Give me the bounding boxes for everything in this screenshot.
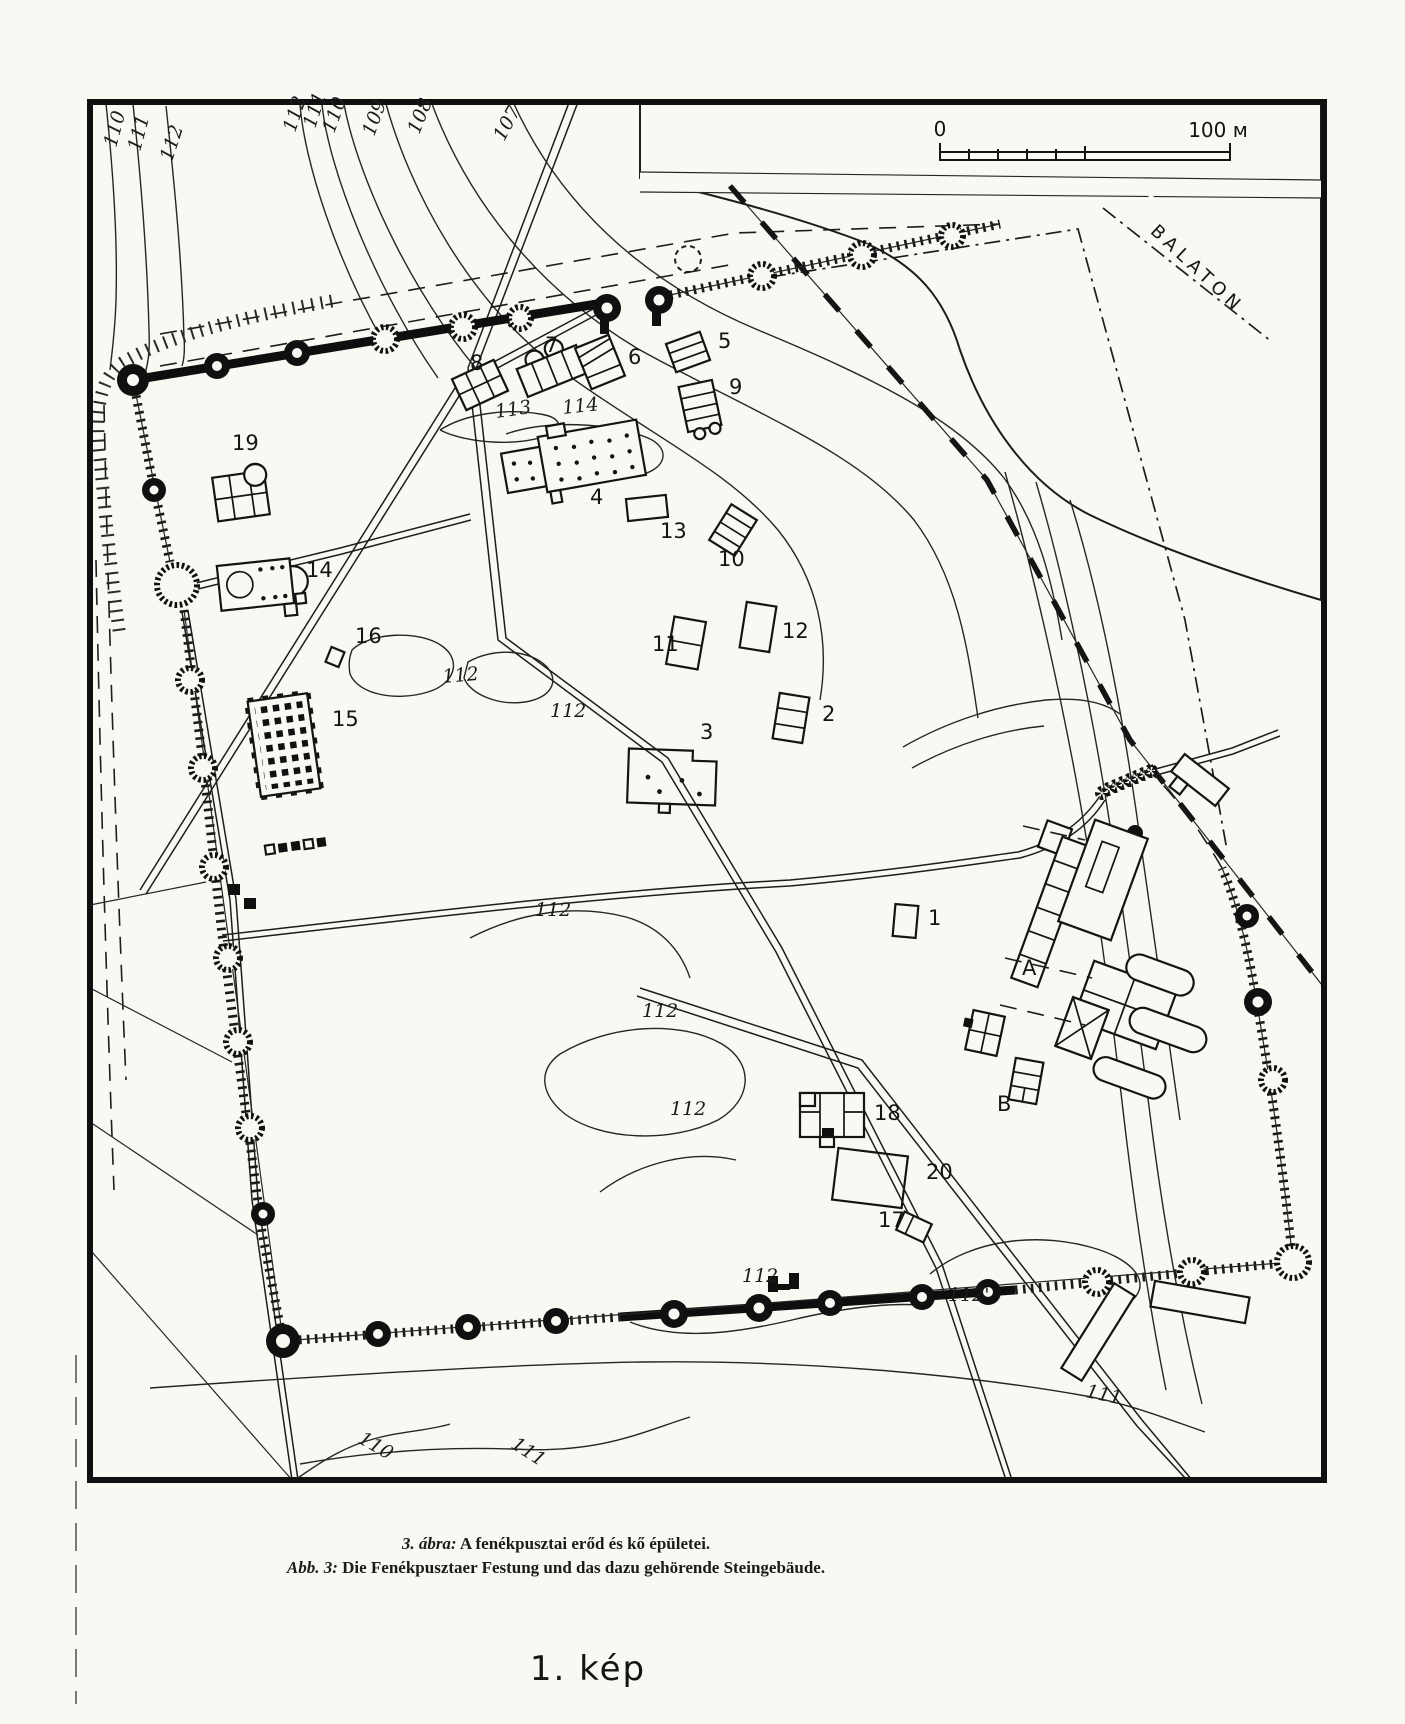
building-label: 15: [332, 707, 359, 731]
building-label: 1: [928, 906, 941, 930]
building-5: [666, 332, 710, 373]
site-map-figure: 0 100 м BALATON 198765941310141611121523…: [0, 0, 1405, 1724]
dashed-boundary-1: [160, 224, 1000, 334]
contour-label: 113: [494, 396, 533, 423]
building-label: 12: [782, 619, 809, 643]
building-20: [832, 1148, 908, 1208]
building-label: 2: [822, 702, 835, 726]
balaton-label: BALATON: [1146, 221, 1248, 318]
contour-label: 111: [1084, 1380, 1124, 1409]
building-label: 14: [306, 558, 333, 582]
contour-label: 112: [156, 122, 188, 163]
building-label: 17: [878, 1208, 905, 1232]
causeway-chain: [1098, 767, 1155, 797]
building-se-tilt-1: [1150, 1281, 1249, 1323]
contour-label: 112: [535, 899, 571, 921]
building-18: [800, 1093, 864, 1147]
building-label: 19: [232, 431, 259, 455]
building-label: 6: [628, 345, 641, 369]
building-3: [627, 748, 717, 814]
contour-label: 112: [670, 1098, 706, 1120]
buildings: [211, 332, 1249, 1381]
building-label: 9: [729, 375, 742, 399]
contour-label: 110: [355, 1427, 397, 1464]
building-13: [626, 495, 668, 521]
north-gate: [593, 286, 673, 334]
building-label: 4: [590, 485, 603, 509]
east-wall: [1222, 868, 1293, 1262]
building-label: 3: [700, 720, 713, 744]
contour-label: 112: [442, 663, 480, 688]
dash-dot-boundary: [770, 229, 1227, 850]
building-4: [498, 411, 648, 511]
shore-road: [640, 172, 1321, 198]
scale-hundred: 100 м: [1188, 118, 1248, 142]
building-12: [740, 602, 777, 652]
building-14: [217, 557, 311, 623]
building-label: A: [1022, 956, 1037, 980]
contour-label: 111: [507, 1433, 549, 1471]
building-label: 7: [545, 333, 558, 357]
scale-zero: 0: [934, 117, 947, 141]
building-label: 8: [470, 351, 483, 375]
building-9: [679, 380, 724, 441]
caption-hungarian: 3. ábra: A fenékpusztai erőd és kő épüle…: [401, 1534, 710, 1553]
building-label: 20: [926, 1160, 953, 1184]
building-1: [893, 904, 919, 938]
scanned-page: 0 100 м BALATON 198765941310141611121523…: [0, 0, 1405, 1724]
building-label: 10: [718, 547, 745, 571]
building-2: [773, 693, 810, 743]
building-label: 18: [874, 1101, 901, 1125]
contour-label: 112': [948, 1284, 990, 1306]
building-label: 13: [660, 519, 687, 543]
caption-german: Abb. 3: Die Fenékpusztaer Festung und da…: [286, 1558, 825, 1577]
building-B: [1009, 1058, 1044, 1104]
out-squares: [265, 837, 327, 854]
contour-label: 112: [642, 1000, 678, 1022]
building-near-B: [958, 1009, 1004, 1056]
road-shore-ne: [1152, 730, 1280, 776]
figure-caption: 3. ábra: A fenékpusztai erőd és kő épüle…: [286, 1534, 825, 1689]
building-se-tilt-2: [1061, 1283, 1134, 1381]
plate-number: 1. kép: [530, 1649, 646, 1689]
contour-label: 112: [550, 700, 586, 722]
contour-label: 107: [489, 101, 526, 144]
building-6: [575, 335, 625, 389]
building-15-horreum: [245, 693, 329, 854]
building-16: [326, 647, 345, 667]
building-label: B: [997, 1092, 1011, 1116]
building-label: 11: [652, 632, 679, 656]
building-label: 16: [355, 624, 382, 648]
building-19: [211, 462, 272, 521]
west-dashed-2: [96, 560, 114, 1190]
dashed-excavation-circle: [675, 246, 701, 272]
road-middle-ew: [222, 796, 1105, 941]
contour-label: 112: [742, 1265, 778, 1287]
contour-label: 114: [561, 393, 599, 419]
building-label: 5: [718, 329, 731, 353]
